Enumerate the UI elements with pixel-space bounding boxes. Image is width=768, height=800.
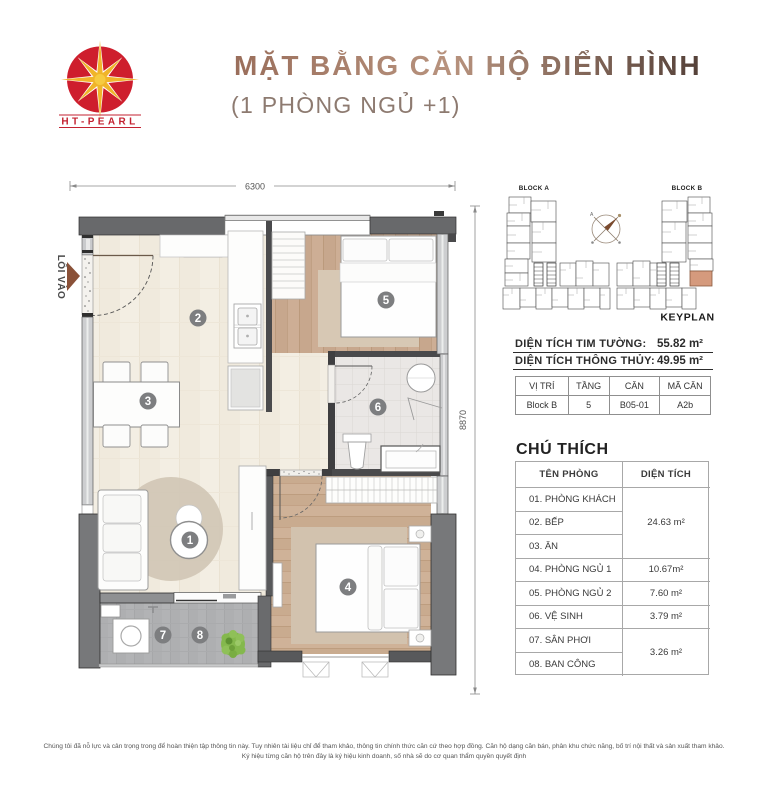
svg-text:1: 1 [187, 535, 194, 547]
svg-text:LỐI VÀO: LỐI VÀO [55, 255, 69, 300]
svg-text:A: A [590, 212, 594, 218]
svg-text:3: 3 [145, 396, 151, 408]
svg-text:4: 4 [345, 582, 352, 594]
svg-text:8870: 8870 [458, 410, 468, 430]
svg-text:KEYPLAN: KEYPLAN [660, 312, 714, 324]
svg-text:BLOCK A: BLOCK A [519, 185, 550, 192]
svg-text:7: 7 [160, 630, 166, 642]
svg-text:6300: 6300 [245, 182, 265, 192]
svg-text:6: 6 [375, 402, 381, 414]
svg-text:5: 5 [383, 295, 390, 307]
svg-text:2: 2 [195, 313, 201, 325]
svg-text:HT-PEARL: HT-PEARL [61, 117, 138, 128]
svg-text:8: 8 [197, 630, 204, 642]
svg-text:BLOCK B: BLOCK B [672, 185, 703, 192]
